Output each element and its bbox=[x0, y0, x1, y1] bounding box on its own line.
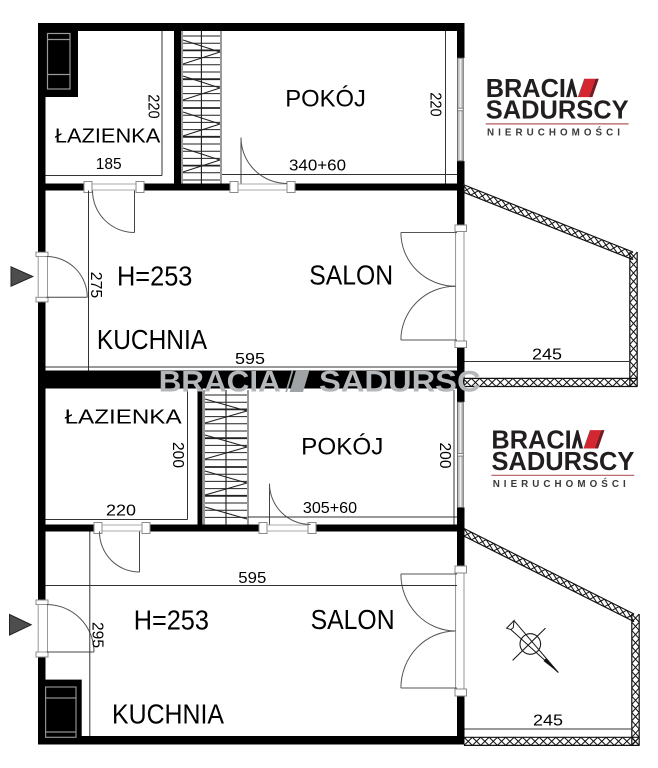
svg-text:245: 245 bbox=[532, 347, 562, 364]
svg-text:KUCHNIA: KUCHNIA bbox=[97, 324, 207, 355]
svg-text:H=253: H=253 bbox=[134, 605, 209, 636]
svg-text:595: 595 bbox=[238, 570, 266, 587]
svg-text:BRACIA: BRACIA bbox=[159, 366, 281, 399]
svg-text:NIERUCHOMOŚCI: NIERUCHOMOŚCI bbox=[487, 127, 620, 139]
svg-text:340+60: 340+60 bbox=[289, 158, 346, 175]
svg-text:H=253: H=253 bbox=[117, 261, 192, 292]
svg-text:SADURSCY: SADURSCY bbox=[486, 95, 629, 125]
svg-text:SALON: SALON bbox=[309, 260, 393, 291]
svg-text:ŁAZIENKA: ŁAZIENKA bbox=[55, 125, 161, 148]
svg-text:305+60: 305+60 bbox=[303, 500, 358, 517]
svg-text:185: 185 bbox=[96, 156, 122, 173]
svg-text:SADURSC: SADURSC bbox=[319, 366, 481, 399]
svg-text:220: 220 bbox=[145, 94, 162, 119]
svg-text:220: 220 bbox=[427, 92, 444, 117]
svg-text:SADURSCY: SADURSCY bbox=[491, 446, 634, 476]
svg-text:295: 295 bbox=[89, 622, 106, 648]
svg-text:245: 245 bbox=[533, 713, 563, 730]
svg-text:POKÓJ: POKÓJ bbox=[301, 434, 383, 461]
svg-text:200: 200 bbox=[436, 443, 453, 469]
svg-text:KUCHNIA: KUCHNIA bbox=[112, 699, 224, 730]
svg-text:200: 200 bbox=[169, 442, 186, 468]
svg-text:275: 275 bbox=[87, 272, 104, 298]
svg-text:ŁAZIENKA: ŁAZIENKA bbox=[65, 405, 182, 428]
svg-text:SALON: SALON bbox=[311, 604, 395, 635]
svg-text:NIERUCHOMOŚCI: NIERUCHOMOŚCI bbox=[493, 478, 626, 490]
svg-text:POKÓJ: POKÓJ bbox=[285, 86, 366, 113]
svg-text:220: 220 bbox=[106, 503, 136, 520]
